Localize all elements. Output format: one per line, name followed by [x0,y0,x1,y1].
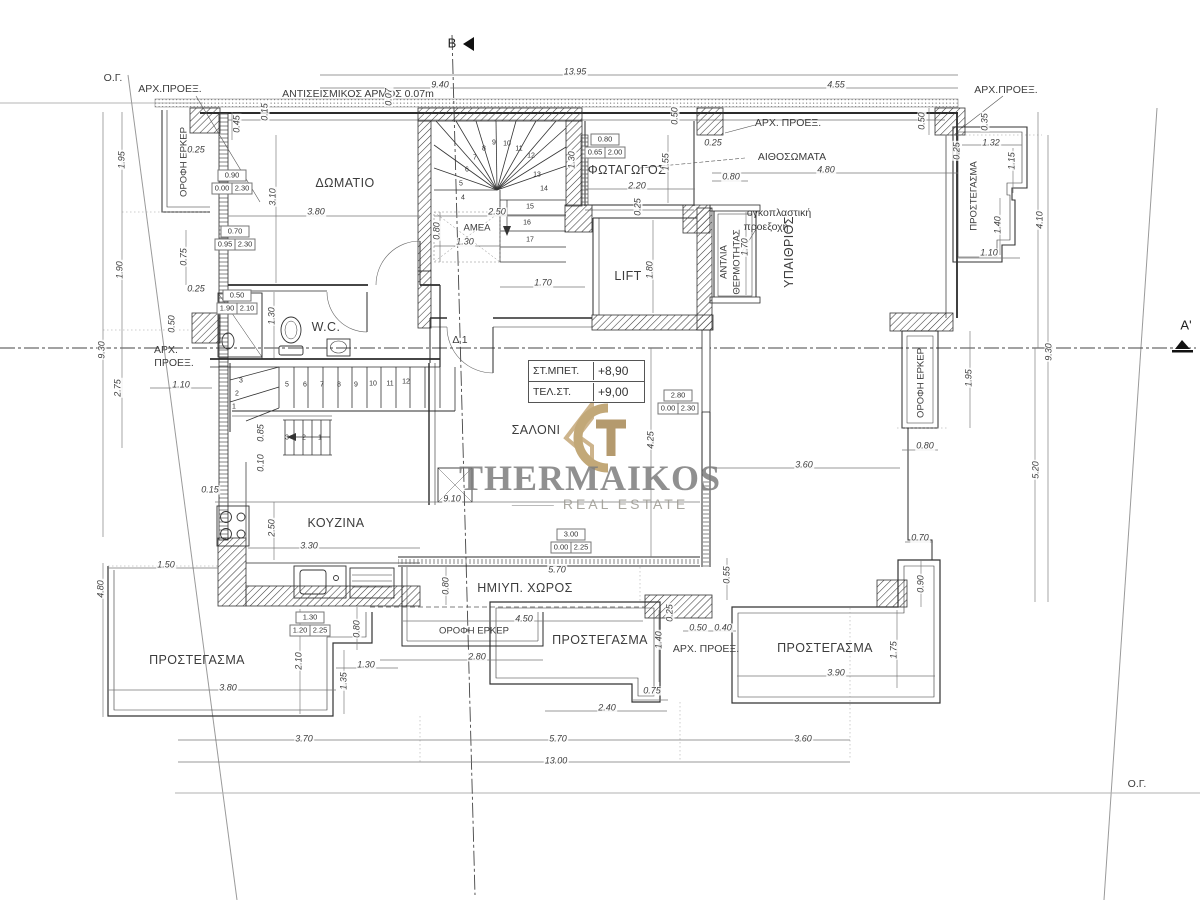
label-heatpump-1: ΑΝΤΛΙΑ [719,245,729,279]
note-door-d1: Δ 1 [452,335,467,346]
dimension-label: 4.80 [97,579,106,599]
dimension-label: 3.80 [218,684,238,693]
level-value: +8,90 [594,361,644,381]
dimension-label: 5.20 [1032,460,1041,480]
toilet-icon [279,317,303,355]
note-arch-proj-2: ΑΡΧ.ΠΡΟΕΞ. [974,85,1037,96]
dimension-label: 5.70 [547,566,567,575]
stair-number: 5 [285,382,289,389]
dimension-label: 0.80 [915,442,935,451]
dimension-label: 9.30 [1045,342,1054,362]
stair-number: 17 [526,237,534,244]
opening-tag: 0.501.902.10 [217,290,258,315]
stair-number: 7 [320,382,324,389]
dimension-label: 4.55 [826,81,846,90]
opening-width: 2.80 [664,390,693,402]
opening-tag: 0.800.652.00 [585,134,626,159]
level-label: ΣΤ.ΜΠΕΤ. [529,362,594,380]
dimension-label: 2.50 [268,518,277,538]
room-label-wc: W.C. [312,321,341,334]
note-arch-proj-3: ΑΡΧ. ΠΡΟΕΞ. [755,118,821,129]
dimension-label: 0.35 [981,112,990,132]
room-label-bedroom: ΔΩΜΑΤΙΟ [315,177,374,190]
dimension-label: 0.85 [257,423,266,443]
lintel-height: 2.30 [232,184,252,194]
dimension-label: 3.80 [306,208,326,217]
dimension-label: 1.10 [979,249,999,258]
dimension-label: 1.80 [646,260,655,280]
staircase [230,121,566,455]
label-bay-roof-w: ΟΡΟΦΗ ΕΡΚΕΡ [179,127,189,197]
sill-height: 1.90 [218,304,237,314]
dimension-label: 0.80 [721,173,741,182]
dimension-label: 0.25 [703,139,723,148]
level-label: ΤΕΛ.ΣΤ. [529,383,594,401]
stair-number: 6 [303,382,307,389]
dimension-label: 4.80 [816,166,836,175]
dimension-label: 0.25 [634,197,643,217]
dimension-label: 0.50 [918,111,927,131]
dimension-label: 4.25 [647,430,656,450]
dimension-label: 3.10 [269,187,278,207]
dimension-label: 1.35 [340,671,349,691]
stair-number: 3 [239,378,243,385]
room-label-semiopen: ΗΜΙΥΠ. ΧΩΡΟΣ [477,582,573,595]
lintel-height: 2.30 [678,404,698,414]
room-label-livingroom: ΣΑΛΟΝΙ [512,424,561,437]
stair-number: 8 [482,146,486,153]
dimension-label: 4.10 [1036,210,1045,230]
stair-number: 12 [527,153,535,160]
level-table: ΣΤ.ΜΠΕΤ. +8,90 ΤΕΛ.ΣΤ. +9,00 [528,360,645,403]
section-marker-a: Α' [1180,319,1191,332]
dimension-label: 1.95 [118,150,127,170]
note-arch-proj-1: ΑΡΧ.ΠΡΟΕΞ. [138,84,201,95]
dimension-label: 1.30 [268,306,277,326]
stair-number: 6 [465,167,469,174]
sill-height: 0.00 [213,184,232,194]
lintel-height: 2.25 [310,626,330,636]
dimension-label: 0.25 [953,141,962,161]
opening-heights: 0.652.00 [585,147,626,159]
note-arch-proj-5: ΑΡΧ. ΠΡΟΕΞ. [673,644,739,655]
dimension-label: 0.07 [385,87,394,107]
level-value: +9,00 [594,382,644,402]
dimension-label: 2.75 [114,378,123,398]
dimension-label: 9.30 [98,340,107,360]
room-label-amea: ΑΜΕΑ [464,223,491,233]
dimension-label: 0.90 [917,574,926,594]
stair-number: 8 [337,382,341,389]
floor-plan-canvas: THERMAIKOS REAL ESTATE ΣΤ.ΜΠΕΤ. +8,90 ΤΕ… [0,0,1200,900]
dimension-label: 9.40 [430,81,450,90]
dimension-label: 1.90 [116,260,125,280]
dimension-label: 0.40 [713,624,733,633]
watermark-brand-name: THERMAIKOS [459,457,721,499]
opening-heights: 0.002.30 [658,403,699,415]
dimension-label: 3.30 [299,542,319,551]
opening-tag: 2.800.002.30 [658,390,699,415]
dimension-label: 2.50 [487,208,507,217]
stair-number: 2 [235,391,239,398]
dimension-label: 1.32 [981,139,1001,148]
sill-height: 0.00 [552,543,571,553]
stair-number: 10 [503,141,511,148]
dimension-label: 0.15 [200,486,220,495]
note-arch-proj-4b: ΠΡΟΕΞ. [154,358,194,369]
dimension-label: 0.70 [910,534,930,543]
opening-tag: 1.301.202.25 [290,612,331,637]
stair-number: 5 [459,181,463,188]
dimension-label: 13.00 [544,757,569,766]
stair-number: 12 [402,379,410,386]
room-label-canopy-s: ΠΡΟΣΤΕΓΑΣΜΑ [552,634,648,647]
opening-tag: 0.700.952.30 [215,226,256,251]
lintel-height: 2.00 [605,148,625,158]
room-label-lift: LIFT [614,270,641,283]
opening-heights: 0.002.30 [212,183,253,195]
dimension-label: 0.15 [261,102,270,122]
dimension-label: 3.70 [294,735,314,744]
dimension-label: 0.10 [257,453,266,473]
dimension-label: 1.75 [890,640,899,660]
note-volume-proj-1: ογκοπλαστική [747,208,811,219]
dimension-label: 2.10 [295,651,304,671]
dimension-label: 0.50 [168,314,177,334]
dimension-label: 3.90 [826,669,846,678]
dimension-label: 9.10 [442,495,462,504]
dimension-label: 3.60 [793,735,813,744]
opening-tag: 0.900.002.30 [212,170,253,195]
stair-number: 10 [369,381,377,388]
dimension-label: 1.70 [741,237,750,257]
opening-width: 0.50 [223,290,252,302]
dimension-label: 0.80 [353,619,362,639]
dimension-label: 2.20 [627,182,647,191]
stair-number: 3 [285,435,289,442]
opening-width: 3.00 [557,529,586,541]
dimension-label: 0.45 [233,114,242,134]
dimension-label: 0.25 [186,285,206,294]
dimension-label: 2.40 [597,704,617,713]
dimension-label: 4.50 [514,615,534,624]
dimension-label: 0.25 [186,146,206,155]
dimension-label: 0.50 [688,624,708,633]
dimension-label: 1.30 [356,661,376,670]
opening-width: 0.90 [218,170,247,182]
stair-number: 9 [492,140,496,147]
dimension-label: 0.75 [180,247,189,267]
level-row: ΣΤ.ΜΠΕΤ. +8,90 [529,361,644,381]
note-volume-proj-2: προεξοχή [743,222,788,233]
stair-number: 14 [540,186,548,193]
note-radiators: ΑΙΘΟΣΩΜΑΤΑ [758,152,826,163]
stair-number: 15 [526,204,534,211]
note-og-bottomright: Ο.Γ. [1128,779,1147,790]
sill-height: 0.95 [216,240,235,250]
dimension-label: 0.75 [642,687,662,696]
lintel-height: 2.30 [235,240,255,250]
dimension-label: 1.50 [156,561,176,570]
opening-width: 0.80 [591,134,620,146]
washbasin-icon [327,339,350,356]
dimension-label: 1.30 [455,238,475,247]
dimension-label: 1.55 [662,152,671,172]
dimension-label: 13.95 [563,68,588,77]
stair-number: 11 [386,381,393,388]
stair-number: 4 [461,195,465,202]
dimension-label: 0.25 [666,603,675,623]
note-og-topleft: Ο.Γ. [104,73,123,84]
opening-width: 1.30 [296,612,325,624]
opening-tag: 3.000.002.25 [551,529,592,554]
stair-number: 7 [473,155,477,162]
lintel-height: 2.10 [237,304,257,314]
dimension-label: 3.60 [794,461,814,470]
label-bay-roof-s: ΟΡΟΦΗ ΕΡΚΕΡ [439,626,509,636]
stair-number: 13 [533,172,541,179]
stair-number: 16 [523,220,531,227]
dimension-label: 1.40 [994,215,1003,235]
stair-number: 2 [302,435,306,442]
level-row: ΤΕΛ.ΣΤ. +9,00 [529,381,644,402]
sill-height: 0.65 [586,148,605,158]
room-label-canopy-ne: ΠΡΟΣΤΕΓΑΣΜΑ [969,161,979,230]
dimension-label: 5.70 [548,735,568,744]
dimension-label: 1.15 [1008,151,1017,171]
dimension-label: 0.55 [723,565,732,585]
room-label-canopy-sw: ΠΡΟΣΤΕΓΑΣΜΑ [149,654,245,667]
opening-heights: 1.202.25 [290,625,331,637]
label-bay-roof-e: ΟΡΟΦΗ ΕΡΚΕΡ [916,348,926,418]
lintel-height: 2.25 [571,543,591,553]
opening-heights: 0.002.25 [551,542,592,554]
sill-height: 0.00 [659,404,678,414]
dimension-label: 1.10 [171,381,191,390]
fixtures [217,293,472,598]
opening-heights: 0.952.30 [215,239,256,251]
stair-number: 1 [318,435,322,442]
note-arch-proj-4a: ΑΡΧ. [154,345,178,356]
sill-height: 1.20 [291,626,310,636]
opening-width: 0.70 [221,226,250,238]
antiseismic-joint-band [155,99,958,107]
stair-number: 9 [354,382,358,389]
stair-number: 11 [515,146,522,153]
room-label-kitchen: ΚΟΥΖΙΝΑ [308,517,365,530]
stair-number: 1 [232,404,236,411]
dimension-label: 1.95 [965,368,974,388]
dimension-label: 1.30 [568,150,577,170]
dimension-label: 1.40 [655,630,664,650]
watermark-tagline: REAL ESTATE [512,496,688,512]
dimension-label: 2.80 [467,653,487,662]
dimension-label: 0.80 [442,576,451,596]
section-marker-b: Β [448,37,457,50]
room-label-canopy-se: ΠΡΟΣΤΕΓΑΣΜΑ [777,642,873,655]
room-label-lightwell: ΦΩΤΑΓΩΓΟΣ [588,164,667,177]
note-seismic-joint: ΑΝΤΙΣΕΙΣΜΙΚΟΣ ΑΡΜΟΣ 0.07m [282,89,434,100]
opening-heights: 1.902.10 [217,303,258,315]
dimension-label: 0.80 [433,221,442,241]
dimension-label: 0.50 [671,106,680,126]
dimension-label: 1.70 [533,279,553,288]
